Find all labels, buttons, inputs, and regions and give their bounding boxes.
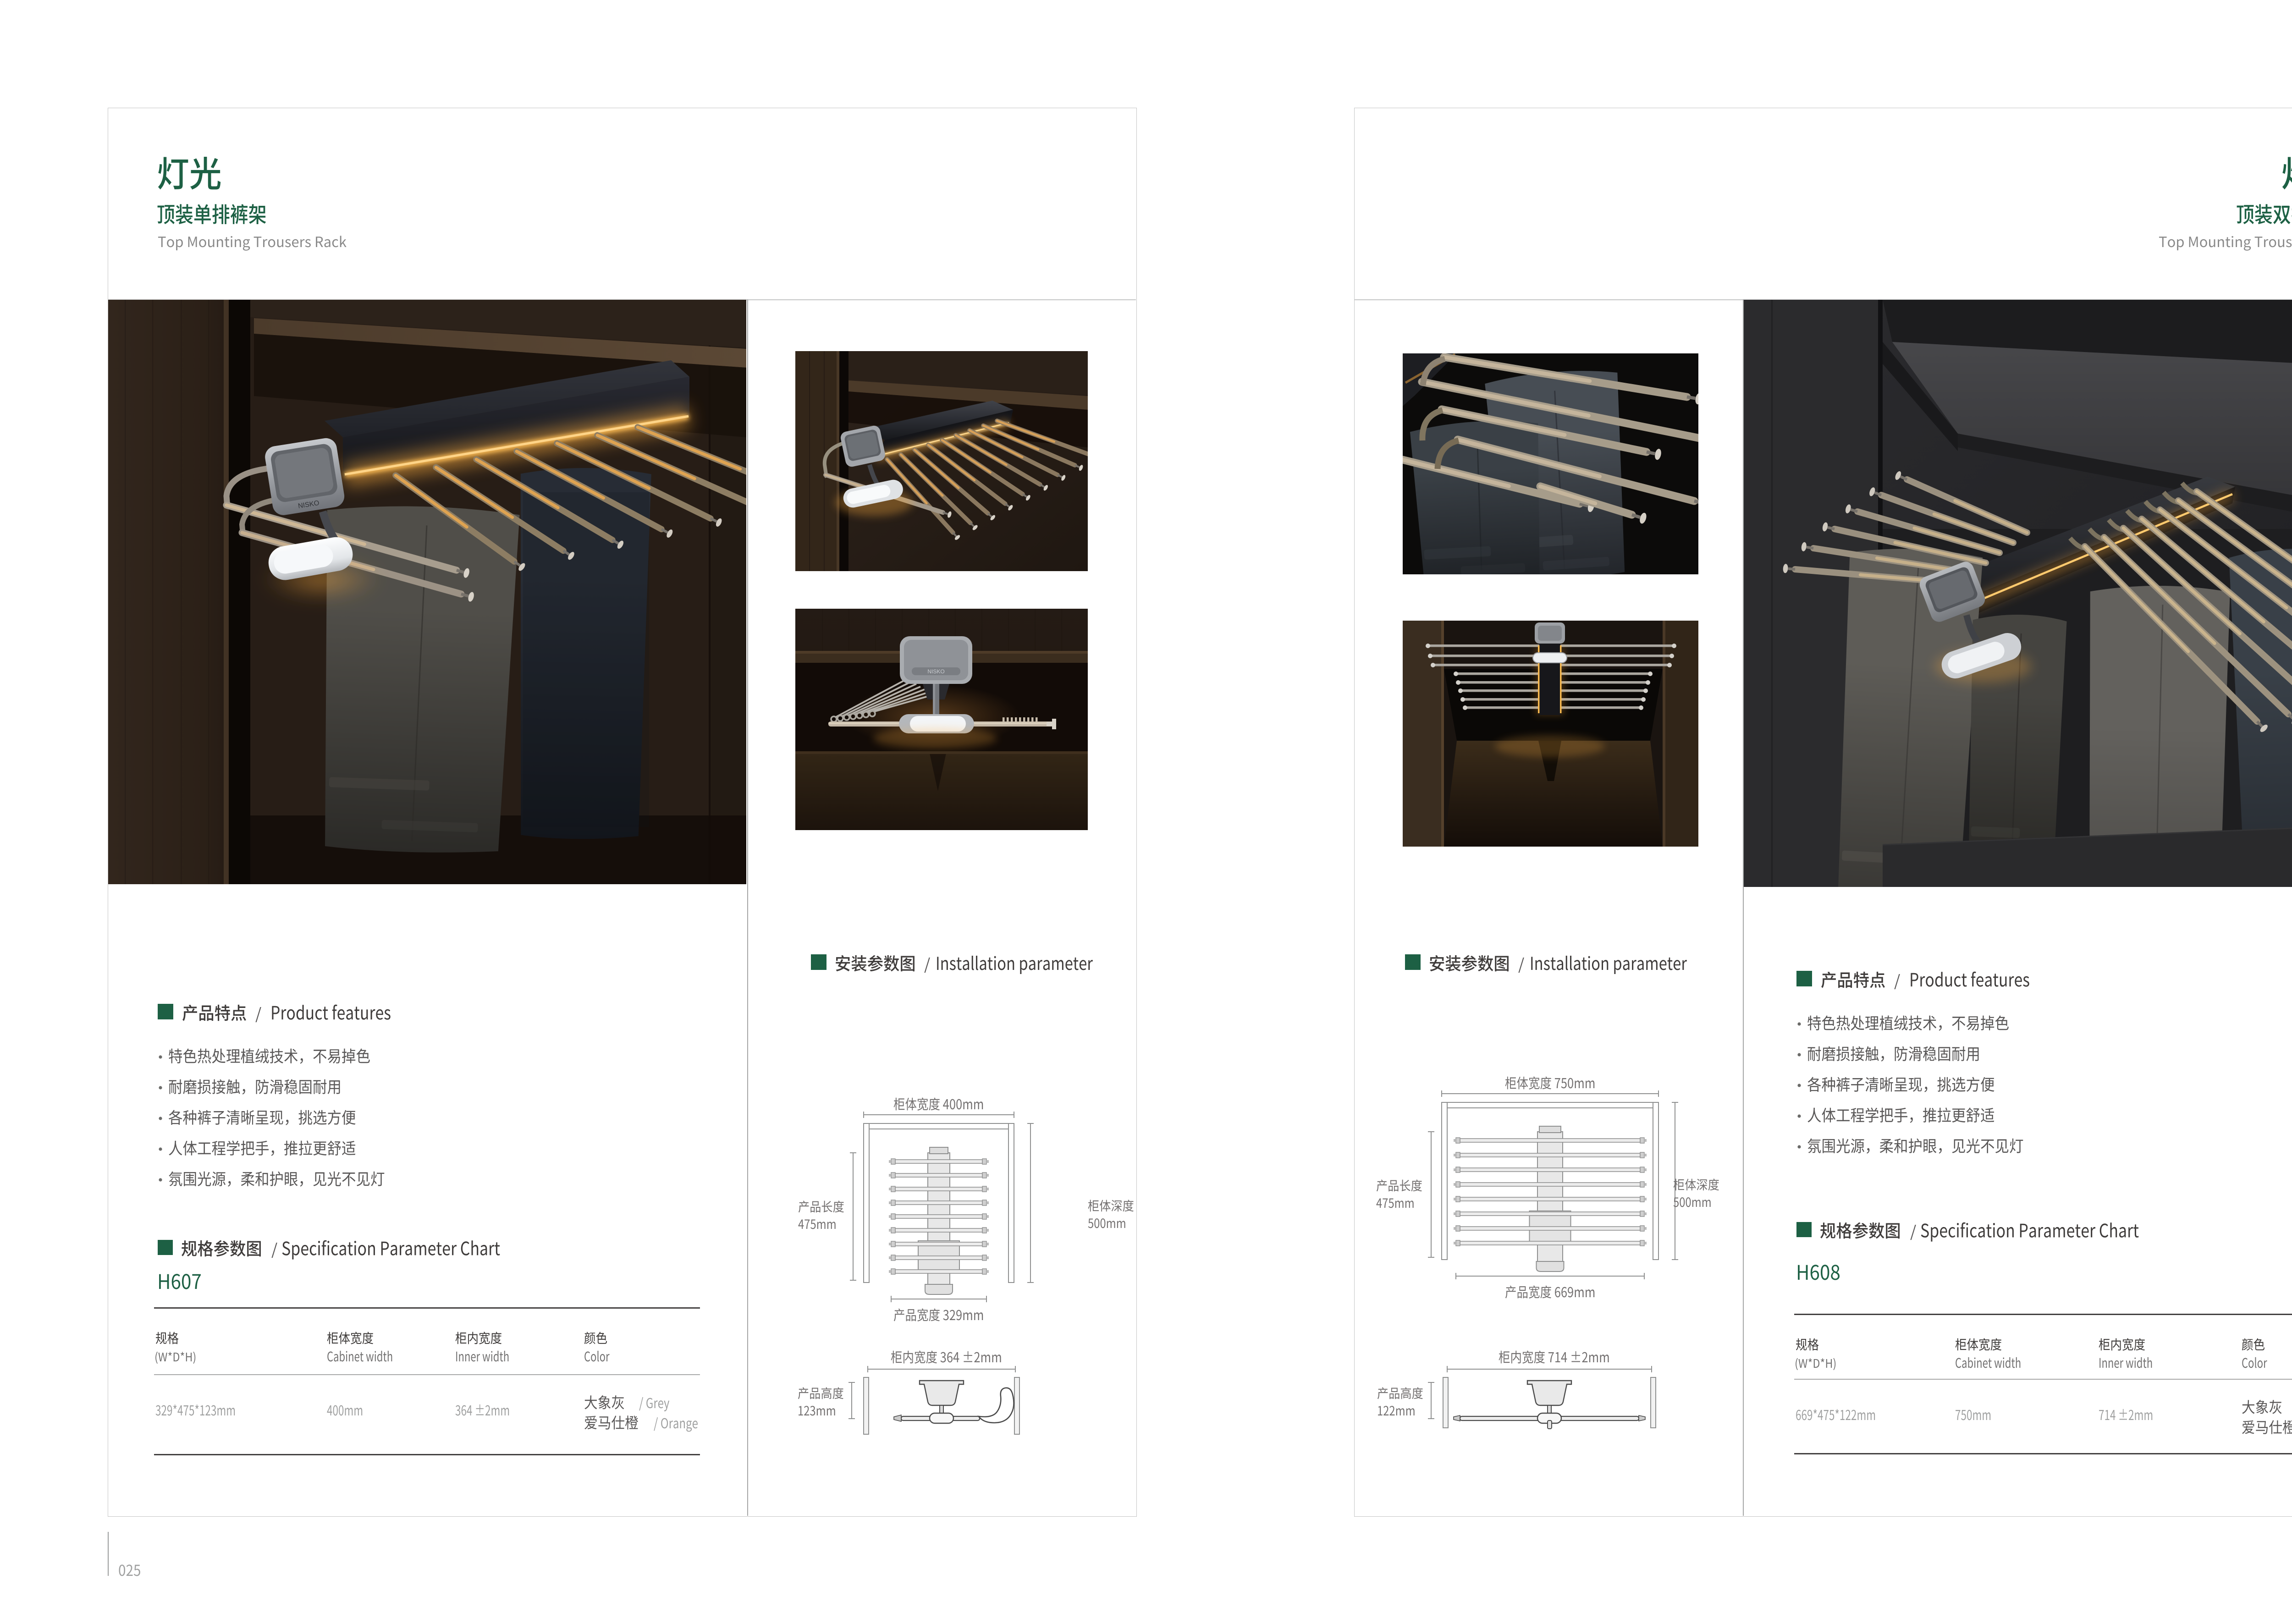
svg-text:NISKO: NISKO [927, 668, 944, 675]
